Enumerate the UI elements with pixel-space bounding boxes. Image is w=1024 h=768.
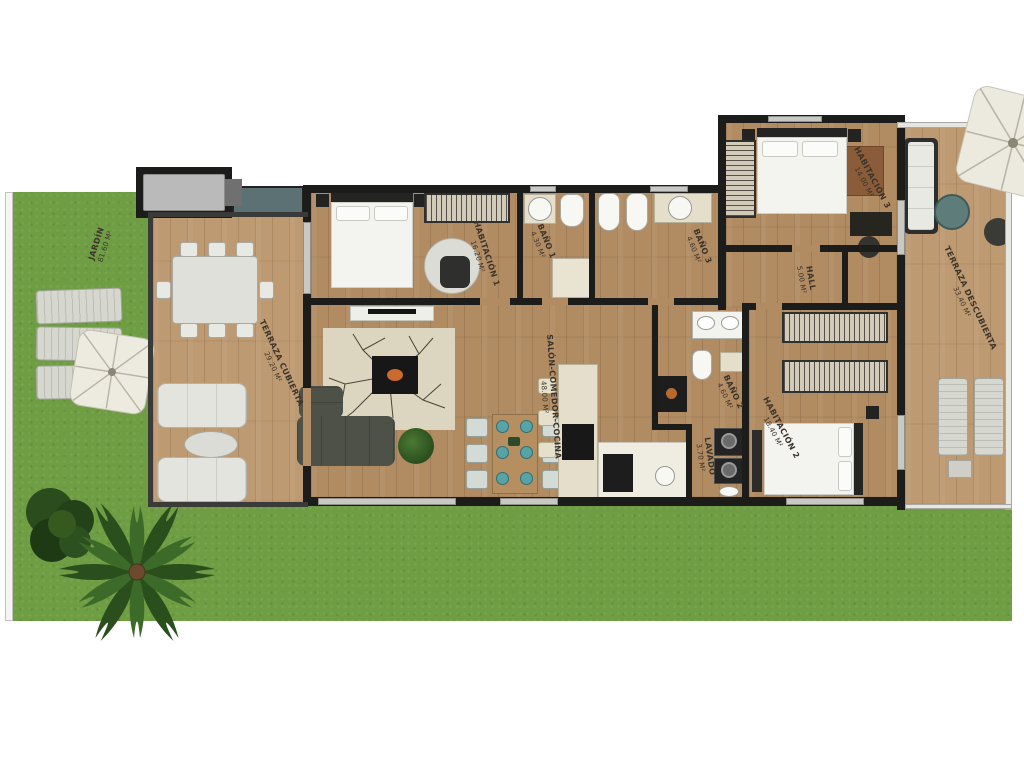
outdoor-chair xyxy=(180,323,198,338)
outdoor-dining-table xyxy=(172,256,258,324)
nightstand xyxy=(848,129,861,142)
window-habitacion-2 xyxy=(897,415,905,470)
door-terraza-salon xyxy=(303,388,311,466)
outdoor-chair xyxy=(156,281,171,299)
laundry-basin xyxy=(719,486,739,497)
bed-bench xyxy=(752,430,762,492)
garden-fence xyxy=(5,192,13,621)
side-table xyxy=(948,460,972,478)
door-bano-3 xyxy=(648,298,674,305)
place-setting xyxy=(520,420,533,433)
garden-parasol xyxy=(70,330,154,414)
kitchen-sink xyxy=(655,466,675,486)
desk xyxy=(850,212,892,236)
pillow xyxy=(802,141,838,157)
place-setting xyxy=(496,420,509,433)
pillow xyxy=(336,206,370,221)
outdoor-coffee-table xyxy=(184,431,238,458)
sun-lounger xyxy=(35,288,122,325)
door-habitacion-3 xyxy=(792,245,820,252)
wall-hab1-bano1 xyxy=(517,188,523,303)
window-habitacion-1 xyxy=(303,222,311,294)
door-habitacion-1 xyxy=(480,298,510,305)
palm-tree xyxy=(52,487,222,657)
sofa-cushions xyxy=(908,142,934,230)
toilet xyxy=(560,194,584,227)
sun-lounger xyxy=(938,378,968,456)
shower xyxy=(552,258,590,298)
nightstand xyxy=(866,406,879,419)
oven xyxy=(603,454,633,492)
bed-headboard xyxy=(854,423,863,495)
pillow xyxy=(374,206,408,221)
place-setting xyxy=(520,446,533,459)
wall-wing-left-lower xyxy=(718,185,726,310)
sink xyxy=(668,196,692,220)
plant xyxy=(398,428,434,464)
stair-block xyxy=(143,174,225,211)
pillow xyxy=(838,427,852,457)
fireplace-stone-area xyxy=(323,328,455,430)
outdoor-chair xyxy=(208,323,226,338)
wardrobe-habitacion-2 xyxy=(782,360,888,393)
cooktop xyxy=(562,424,594,460)
armchair xyxy=(440,256,470,288)
toilet xyxy=(692,350,712,380)
pillow xyxy=(762,141,798,157)
stair-door xyxy=(225,179,242,206)
outdoor-round-table xyxy=(934,194,970,230)
wall-lavado-left xyxy=(686,424,692,500)
outdoor-chair xyxy=(180,242,198,257)
boiler-flame xyxy=(666,388,677,399)
outdoor-chair xyxy=(259,281,274,299)
door-habitacion-2 xyxy=(756,303,782,310)
window-cocina-south xyxy=(500,498,558,505)
planter-strip xyxy=(232,186,304,214)
wall-wing-left-upper xyxy=(718,115,726,195)
window-hab2-south xyxy=(786,498,864,505)
sofa-salon xyxy=(297,416,395,466)
sun-lounger xyxy=(974,378,1004,456)
outdoor-chair xyxy=(236,242,254,257)
place-setting xyxy=(496,446,509,459)
window-bano-1 xyxy=(530,186,556,192)
place-setting xyxy=(496,472,509,485)
tv xyxy=(368,309,416,314)
wardrobe-habitacion-2 xyxy=(782,312,888,343)
bath-shelf xyxy=(720,352,744,372)
door-hab3-terraza xyxy=(897,200,905,255)
place-setting xyxy=(520,472,533,485)
table-centerpiece xyxy=(508,437,520,446)
nightstand xyxy=(316,194,329,207)
slider-salon-south xyxy=(318,498,456,505)
bed-headboard xyxy=(331,193,413,202)
wardrobe-habitacion-1 xyxy=(424,193,510,223)
sink xyxy=(721,316,739,330)
bed-headboard xyxy=(757,128,847,137)
wall-bano1-bano3 xyxy=(589,188,595,303)
door-bano-1 xyxy=(542,298,568,305)
dining-chair xyxy=(466,444,488,463)
sink xyxy=(697,316,715,330)
wall-hall-right xyxy=(842,252,848,303)
outdoor-sofa xyxy=(157,383,247,428)
sink xyxy=(528,197,552,221)
washer-door xyxy=(721,433,737,449)
wall-bano2-left xyxy=(652,305,658,430)
dining-chair xyxy=(466,470,488,489)
parapet-bottom xyxy=(905,504,1012,509)
dryer-door xyxy=(721,462,737,478)
terrace-wall-top xyxy=(148,212,308,217)
toilet xyxy=(598,193,620,231)
garden-lawn-bottom xyxy=(153,505,1012,621)
terrace-wall-left xyxy=(148,215,153,507)
window-bano-3 xyxy=(650,186,688,192)
wardrobe-habitacion-3 xyxy=(724,140,756,218)
pillow xyxy=(838,461,852,491)
bidet xyxy=(626,193,648,231)
dining-chair xyxy=(466,418,488,437)
window-habitacion-3 xyxy=(768,116,822,122)
outdoor-chair xyxy=(208,242,226,257)
floor-plan-canvas: JARDÍN 81.60 m² TERRAZA CUBIERTA 29.20 m… xyxy=(0,0,1024,768)
terrace-parasol xyxy=(958,88,1024,198)
